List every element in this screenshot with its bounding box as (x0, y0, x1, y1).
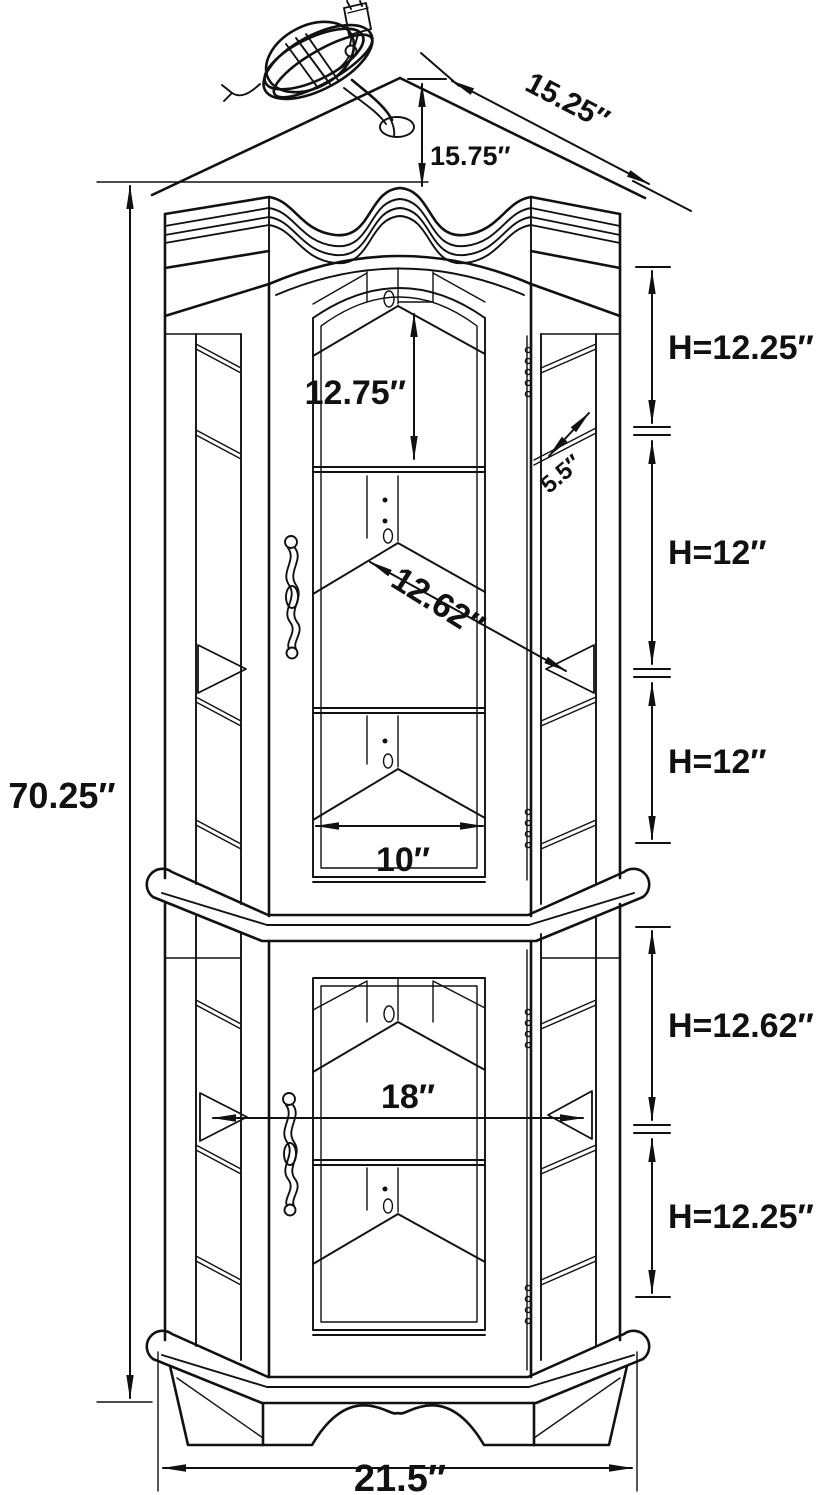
dim-overall-height: 70.25″ (8, 182, 428, 1402)
lower-interior-width-label: 18″ (381, 1078, 435, 1116)
dim-top-depth: 15.75″ (408, 79, 511, 186)
top-width-label: 15.25″ (520, 66, 615, 137)
cabinet-dimension-drawing: 70.25″ 15.75″ 15.25″ H=12.25″ H=12″ H=12… (0, 0, 840, 1495)
diagram-canvas: 70.25″ 15.75″ 15.25″ H=12.25″ H=12″ H=12… (0, 0, 840, 1495)
lower-door (313, 978, 485, 1335)
shelf-diagonal-label: 12.62″ (385, 560, 491, 646)
waist-molding (147, 869, 649, 941)
upper-door-handle (285, 536, 300, 659)
upper-interior-shelves (313, 268, 485, 820)
top-depth-label: 15.75″ (430, 141, 511, 171)
lower-door-handle (283, 1093, 298, 1216)
lower-side-shelf-edges (196, 1000, 596, 1285)
dim-shelf-heights-right: H=12.25″ H=12″ H=12″ H=12.62″ H=12.25″ (634, 267, 814, 1297)
upper-opening-height-label: 12.75″ (305, 374, 406, 412)
base-width-label: 21.5″ (354, 1458, 446, 1495)
dim-top-width: 15.25″ (421, 53, 691, 211)
overall-height-label: 70.25″ (8, 775, 115, 816)
scalloped-apron (263, 1405, 534, 1445)
lower-interior-shelves (313, 978, 485, 1264)
lower-shelf2-height-label: H=12.25″ (668, 1198, 814, 1236)
upper-shelf3-height-label: H=12″ (668, 743, 767, 781)
upper-shelf-front-width-label: 10″ (376, 841, 430, 879)
dim-shelf-diagonal: 12.62″ (370, 560, 566, 671)
cord-hole (380, 117, 414, 137)
side-glass-width-label: 5.5″ (535, 449, 587, 499)
dim-side-glass-width: 5.5″ (535, 413, 589, 499)
lower-shelf1-height-label: H=12.62″ (668, 1007, 814, 1045)
upper-shelf1-height-label: H=12.25″ (668, 329, 814, 367)
dim-base-width: 21.5″ (158, 1352, 637, 1495)
power-cord-illustration (222, 1, 392, 124)
lower-cabinet (165, 904, 620, 1377)
upper-shelf2-height-label: H=12″ (668, 534, 767, 572)
dim-upper-shelf-front-width: 10″ (316, 826, 483, 879)
base (147, 1331, 649, 1445)
